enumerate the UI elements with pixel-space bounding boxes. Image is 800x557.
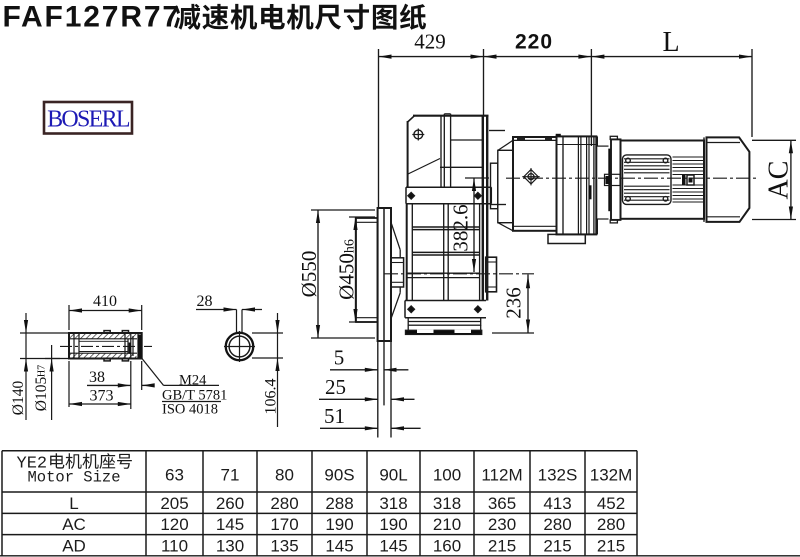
svg-text:H7: H7 <box>37 365 48 377</box>
svg-text:63: 63 <box>165 466 184 485</box>
svg-text:215: 215 <box>597 536 625 555</box>
svg-text:280: 280 <box>597 515 625 534</box>
svg-text:132M: 132M <box>590 466 633 485</box>
svg-text:452: 452 <box>597 494 625 513</box>
svg-text:Motor Size: Motor Size <box>27 469 120 487</box>
svg-text:145: 145 <box>216 515 244 534</box>
svg-text:288: 288 <box>325 494 353 513</box>
svg-text:AD: AD <box>62 536 86 555</box>
svg-text:ISO 4018: ISO 4018 <box>162 402 218 418</box>
svg-text:25: 25 <box>325 375 346 399</box>
svg-text:190: 190 <box>325 515 353 534</box>
svg-text:L: L <box>662 27 679 58</box>
svg-text:AC: AC <box>62 515 86 534</box>
svg-text:Ø140: Ø140 <box>10 381 27 416</box>
svg-text:190: 190 <box>379 515 407 534</box>
svg-text:28: 28 <box>197 293 213 310</box>
svg-text:51: 51 <box>324 404 345 428</box>
svg-text:132S: 132S <box>538 466 578 485</box>
svg-text:382.6: 382.6 <box>449 204 473 251</box>
svg-text:L: L <box>69 494 78 513</box>
svg-text:BOSERL: BOSERL <box>47 107 130 133</box>
svg-text:260: 260 <box>216 494 244 513</box>
svg-text:318: 318 <box>379 494 407 513</box>
svg-text:38: 38 <box>89 369 105 386</box>
svg-text:170: 170 <box>270 515 298 534</box>
svg-text:145: 145 <box>379 536 407 555</box>
svg-text:90L: 90L <box>379 466 407 485</box>
svg-text:280: 280 <box>543 515 571 534</box>
svg-text:120: 120 <box>160 515 188 534</box>
svg-text:Ø105: Ø105 <box>33 377 50 412</box>
svg-text:FAF127R77: FAF127R77 <box>3 1 181 34</box>
svg-text:AC: AC <box>764 161 795 200</box>
svg-text:Ø550: Ø550 <box>297 251 321 298</box>
svg-text:220: 220 <box>515 31 553 54</box>
svg-text:106.4: 106.4 <box>263 379 280 415</box>
svg-text:80: 80 <box>275 466 294 485</box>
svg-text:205: 205 <box>160 494 188 513</box>
svg-text:318: 318 <box>433 494 461 513</box>
svg-text:145: 145 <box>325 536 353 555</box>
svg-text:410: 410 <box>93 293 117 310</box>
svg-text:71: 71 <box>221 466 240 485</box>
svg-text:90S: 90S <box>324 466 354 485</box>
svg-text:5: 5 <box>334 346 345 370</box>
svg-text:413: 413 <box>543 494 571 513</box>
svg-text:280: 280 <box>270 494 298 513</box>
svg-text:100: 100 <box>433 466 461 485</box>
svg-text:160: 160 <box>433 536 461 555</box>
svg-text:M24: M24 <box>179 373 207 389</box>
svg-text:110: 110 <box>161 536 188 555</box>
svg-text:365: 365 <box>488 494 516 513</box>
svg-text:236: 236 <box>502 287 526 319</box>
svg-text:130: 130 <box>216 536 244 555</box>
svg-text:210: 210 <box>433 515 461 534</box>
svg-text:215: 215 <box>488 536 516 555</box>
svg-text:429: 429 <box>414 30 446 54</box>
svg-text:135: 135 <box>270 536 298 555</box>
svg-text:112M: 112M <box>481 466 522 485</box>
svg-text:215: 215 <box>543 536 571 555</box>
svg-text:230: 230 <box>488 515 516 534</box>
svg-text:373: 373 <box>90 388 114 405</box>
